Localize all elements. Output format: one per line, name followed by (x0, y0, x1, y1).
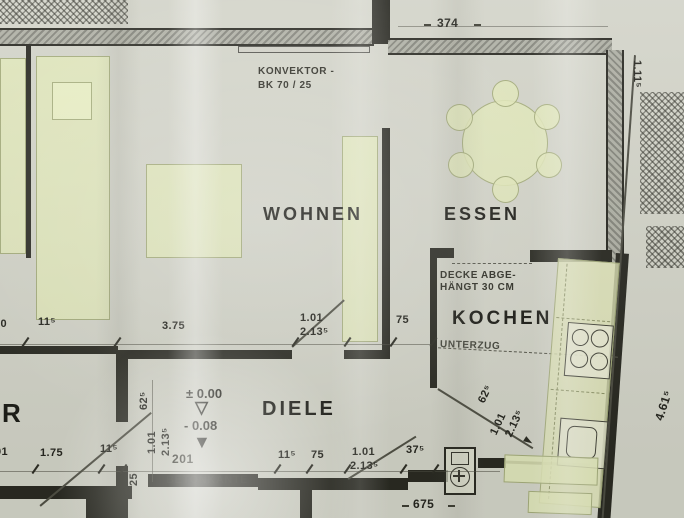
dimension-dash (424, 24, 431, 26)
dimension-dash (474, 24, 481, 26)
note-decke-line2: HÄNGT 30 CM (440, 282, 514, 293)
counter-divider (551, 389, 605, 394)
water-heater-dial (450, 467, 470, 487)
chair-icon (492, 80, 519, 107)
dim-mid: 50 (0, 318, 7, 330)
note-konvektor-line1: KONVEKTOR - (258, 66, 334, 77)
wall-wohnen-diele (116, 350, 292, 359)
dim-mid: 11⁵ (38, 316, 56, 328)
exterior-wall-hatch (0, 0, 128, 24)
dim-left-vertical: 2.13⁵ (160, 427, 172, 456)
dimension-tick (400, 464, 408, 474)
dim-right-top: 1.11⁵ (631, 60, 643, 88)
sink-basin (565, 425, 597, 459)
coffee-table (146, 164, 242, 258)
room-label-kochen: KOCHEN (452, 308, 552, 330)
exterior-wall-hatch (646, 226, 684, 268)
dim-mid: 1.01 (300, 312, 323, 324)
burner-icon (569, 349, 588, 368)
room-label-essen: ESSEN (444, 204, 520, 225)
water-heater-box (451, 452, 469, 465)
dimension-line (0, 344, 432, 345)
wall-stub-down (300, 490, 312, 518)
wall-wohnen-diele (344, 350, 390, 359)
burner-icon (571, 328, 589, 346)
wall-kochen-left (430, 258, 437, 388)
dimension-line (0, 471, 500, 472)
dimension-line (398, 26, 608, 27)
dimension-tick (390, 337, 398, 347)
dim-mid: 2.13⁵ (300, 326, 329, 338)
wall-kochen-bottom (478, 458, 506, 468)
chair-icon (446, 104, 473, 131)
dim-bottom: 37⁵ (406, 444, 425, 456)
paper-crease (430, 0, 485, 518)
chair-icon (492, 176, 519, 203)
dim-right-height: 4.61⁵ (652, 389, 675, 423)
chair-icon (448, 152, 474, 178)
wall-essen-kochen-left (430, 248, 454, 258)
dim-left-vertical: 62⁵ (138, 391, 150, 410)
dimension-tick (98, 464, 106, 474)
chair-icon (534, 104, 560, 130)
chair-icon (536, 152, 562, 178)
dim-bottom: 11⁵ (278, 449, 296, 461)
dimension-dash (402, 505, 409, 507)
dial-line (453, 475, 465, 477)
note-konvektor-line2: BK 70 / 25 (258, 80, 312, 91)
dim-kochen-door: 62⁵ (476, 383, 495, 405)
counter-divider (556, 317, 610, 322)
dim-left-vertical: 1.01 (146, 431, 158, 454)
note-decke-line1: DECKE ABGE- (440, 270, 516, 281)
convector-icon (238, 46, 370, 53)
dim-bottom: 75 (311, 449, 324, 461)
room-label-fragment: R (2, 398, 21, 429)
dimension-tick (274, 464, 282, 474)
wall-bottom-left-stub (86, 499, 116, 518)
dim-mid: 3.75 (162, 320, 185, 332)
dim-bottom: 1.75 (40, 447, 63, 459)
dim-mid: 75 (396, 314, 409, 326)
room-label-diele: DIELE (262, 398, 336, 421)
wall-left-room-top (0, 346, 118, 354)
dim-top-width: 374 (437, 16, 458, 30)
dim-bottom: 2.13⁵ (350, 460, 379, 472)
room-label-wohnen: WOHNEN (263, 204, 363, 225)
floor-plan-photo: WOHNEN ESSEN KOCHEN DIELE R KONVEKTOR - … (0, 0, 684, 518)
cabinet-strip (342, 136, 378, 342)
neighbor-furniture (0, 58, 26, 254)
interior-wall-left (26, 46, 31, 258)
exterior-wall-top-right (388, 38, 612, 55)
kitchen-low-cabinet (504, 454, 599, 485)
dimension-dash (448, 505, 455, 507)
level-symbol-filled-icon: ▼ (193, 432, 211, 453)
wall-wohnen-essen (382, 128, 390, 354)
cooktop-icon (564, 322, 614, 379)
dimension-tick (306, 464, 314, 474)
burner-icon (590, 329, 609, 348)
ceiling-dashed-line (452, 263, 532, 264)
dim-left-vertical: 25 (128, 473, 140, 486)
note-betonkante: BETONKANTE (166, 474, 248, 486)
wall-diele-bottom (258, 478, 408, 490)
dim-bottom-width: 675 (413, 497, 434, 511)
dim-kochen-door: 2.13⁵ (503, 408, 526, 439)
dim-bottom: 11⁵ (100, 443, 118, 455)
note-unterzug: UNTERZUG (440, 339, 501, 352)
dim-bottom: 01 (0, 446, 8, 458)
exterior-wall-top-left (0, 28, 374, 46)
kitchen-low-cabinet (528, 491, 593, 515)
dim-bottom: 1.01 (352, 446, 375, 458)
side-table (52, 82, 92, 120)
burner-icon (589, 352, 608, 371)
wall-bottom-left (0, 486, 132, 499)
level-value-lower: - 0.08 (184, 418, 217, 433)
exterior-wall-hatch (640, 92, 684, 214)
dimension-tick (32, 464, 40, 474)
wall-diele-left (116, 350, 128, 422)
note-beton-number: 201 (172, 452, 194, 466)
level-symbol-open-icon: ▽ (195, 398, 208, 418)
